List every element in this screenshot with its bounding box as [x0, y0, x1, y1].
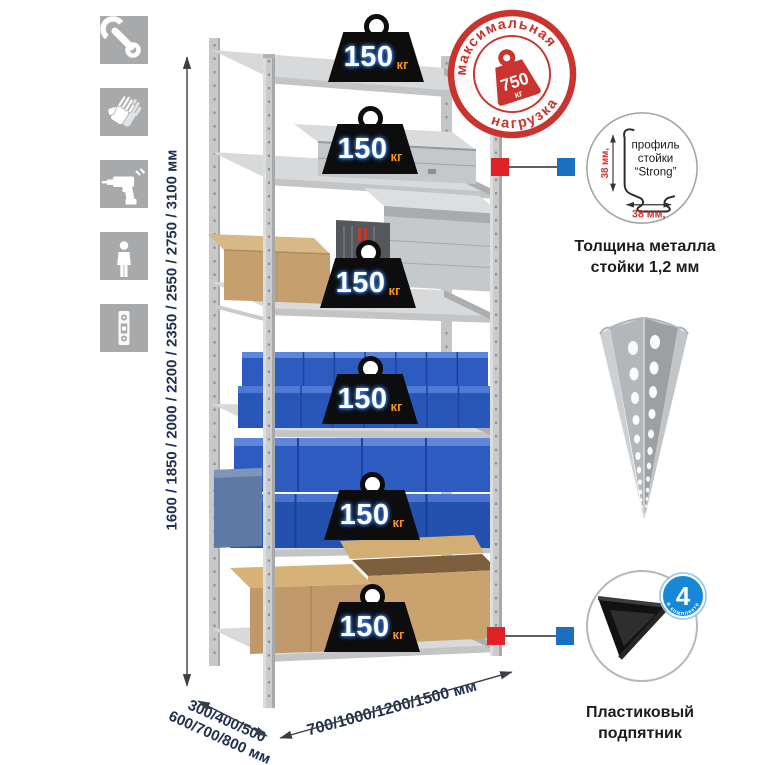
callout-red-square	[487, 627, 505, 645]
profile-callout	[491, 158, 575, 176]
callout-blue-square	[557, 158, 575, 176]
product-infographic: 1600 / 1850 / 2000 / 2200 / 2350 / 2550 …	[0, 0, 765, 765]
dimension-lines	[0, 0, 765, 765]
width-dimension-line	[280, 672, 512, 738]
callout-blue-square	[556, 627, 574, 645]
depth-dimension-line	[198, 701, 267, 736]
callout-red-square	[491, 158, 509, 176]
foot-callout	[487, 627, 574, 645]
